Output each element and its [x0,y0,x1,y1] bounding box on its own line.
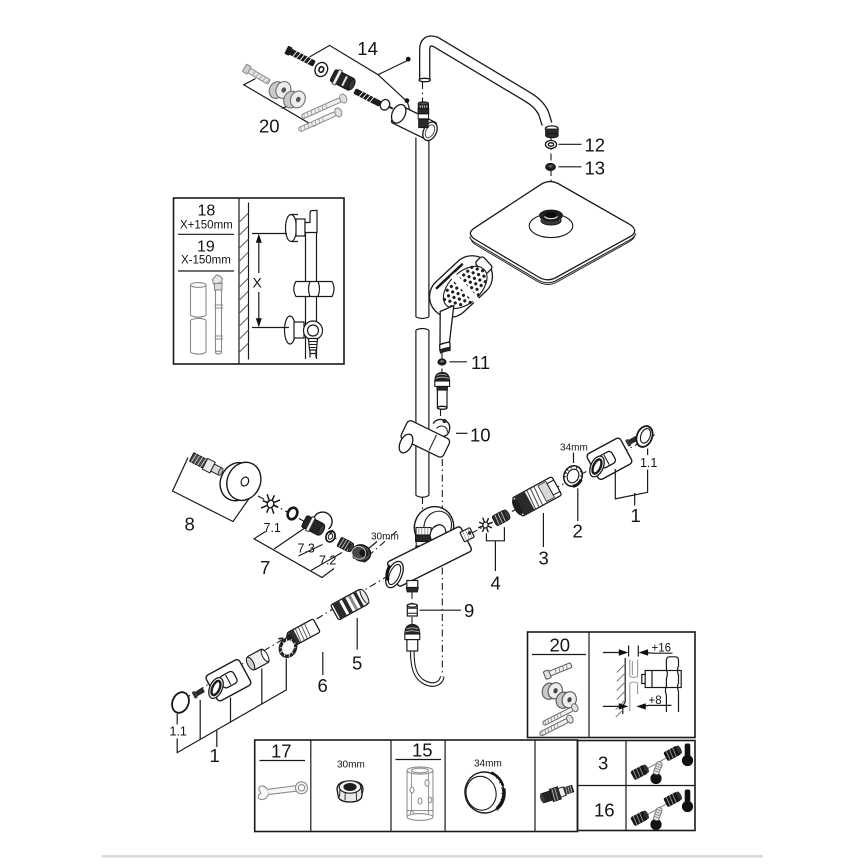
svg-text:13: 13 [585,158,606,179]
svg-text:5: 5 [352,653,362,674]
svg-text:X+150mm: X+150mm [180,220,233,232]
svg-text:30mm: 30mm [337,760,365,771]
svg-text:34mm: 34mm [560,443,588,454]
svg-text:1: 1 [631,505,641,526]
svg-text:7.3: 7.3 [298,542,315,556]
svg-text:X-150mm: X-150mm [181,255,231,267]
svg-text:30mm: 30mm [371,531,399,542]
svg-text:2: 2 [573,521,583,542]
svg-text:16: 16 [594,800,615,821]
svg-text:11: 11 [471,352,490,373]
svg-text:10: 10 [470,425,491,446]
svg-text:14: 14 [357,38,378,59]
svg-text:15: 15 [412,740,433,761]
svg-text:18: 18 [198,203,216,220]
svg-text:19: 19 [197,239,215,256]
svg-text:20: 20 [259,116,280,137]
svg-text:4: 4 [491,573,501,594]
svg-text:1.1: 1.1 [170,725,187,739]
svg-text:7.1: 7.1 [264,521,281,535]
svg-text:20: 20 [550,635,571,656]
svg-text:3: 3 [598,753,608,774]
svg-text:9: 9 [464,600,474,621]
svg-text:12: 12 [585,135,606,156]
svg-text:8: 8 [185,514,195,535]
svg-text:1.1: 1.1 [640,456,657,470]
svg-text:6: 6 [318,675,328,696]
svg-text:1: 1 [210,745,220,766]
svg-text:7: 7 [260,557,270,578]
svg-text:X: X [253,275,263,291]
svg-text:34mm: 34mm [474,759,502,770]
svg-text:17: 17 [271,741,292,762]
svg-text:3: 3 [539,548,549,569]
svg-text:7.2: 7.2 [319,554,336,568]
